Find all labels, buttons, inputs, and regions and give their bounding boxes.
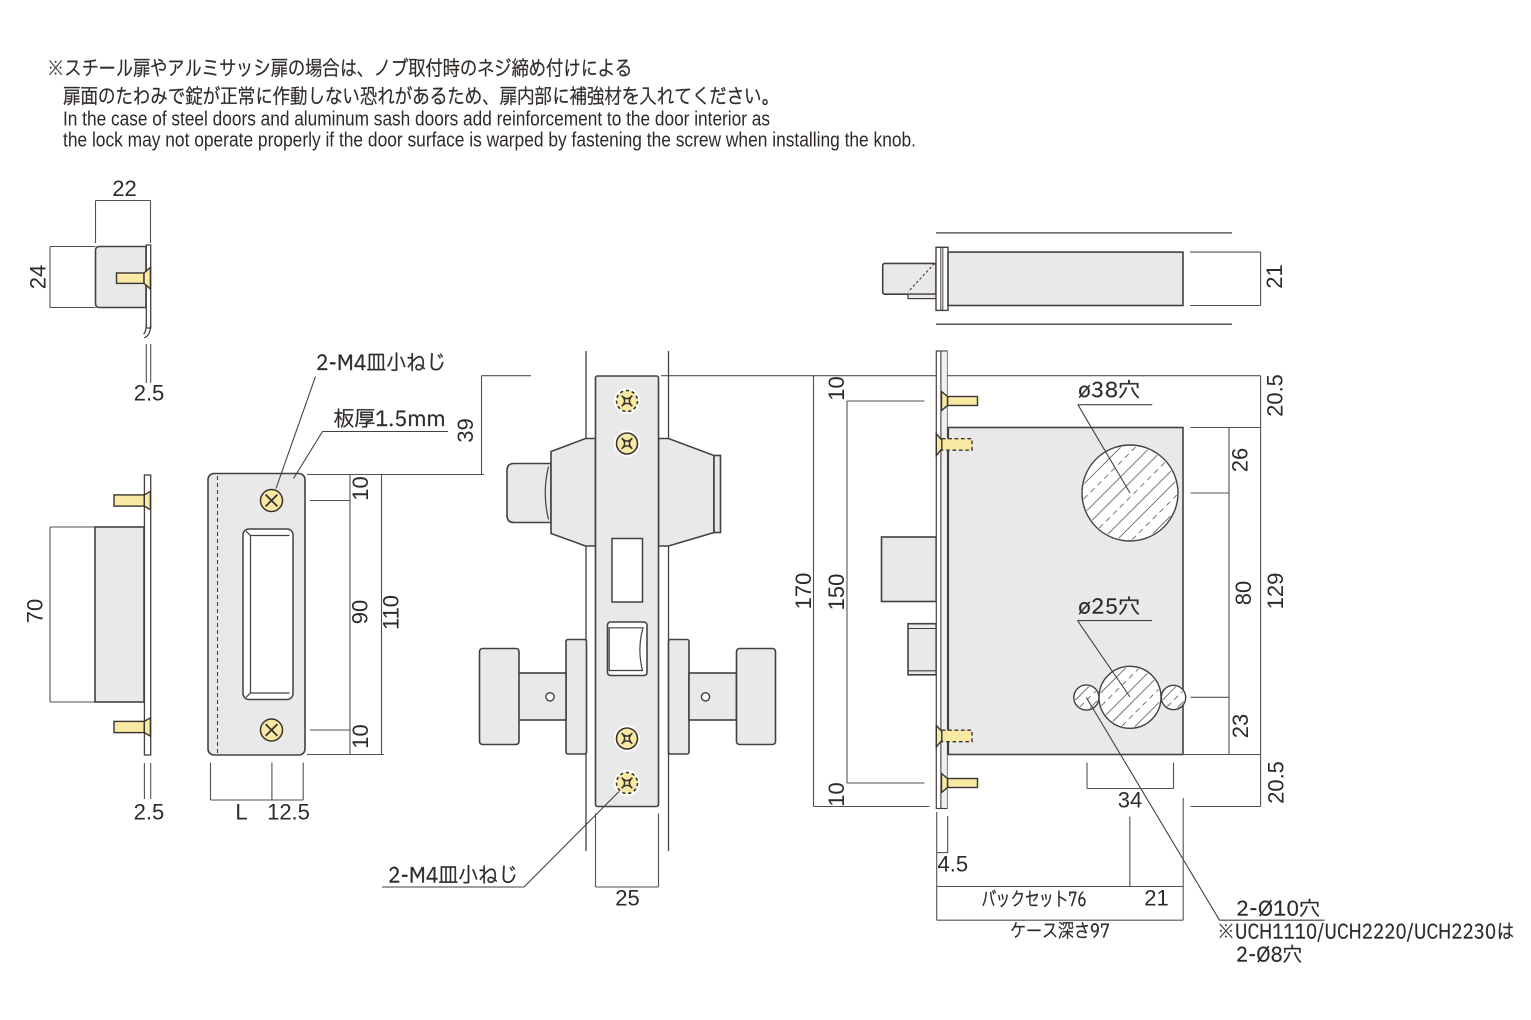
svg-text:129: 129 — [1263, 573, 1288, 610]
svg-text:110: 110 — [379, 595, 404, 630]
svg-text:21: 21 — [1144, 886, 1168, 911]
svg-text:21: 21 — [1262, 264, 1287, 288]
svg-text:34: 34 — [1118, 788, 1142, 813]
svg-text:26: 26 — [1228, 448, 1253, 472]
svg-text:90: 90 — [348, 600, 373, 624]
svg-text:12.5: 12.5 — [267, 800, 310, 825]
svg-text:4.5: 4.5 — [938, 852, 969, 877]
svg-text:22: 22 — [112, 176, 136, 201]
svg-text:20.5: 20.5 — [1264, 761, 1289, 804]
svg-text:2.5: 2.5 — [134, 381, 165, 406]
svg-text:70: 70 — [23, 599, 48, 623]
svg-text:150: 150 — [824, 574, 849, 611]
svg-text:L: L — [235, 800, 247, 825]
svg-text:10: 10 — [824, 376, 849, 400]
svg-text:23: 23 — [1228, 714, 1253, 738]
svg-text:80: 80 — [1231, 581, 1256, 605]
svg-text:25: 25 — [615, 886, 639, 911]
svg-text:20.5: 20.5 — [1263, 374, 1288, 417]
svg-text:the lock may not operate prope: the lock may not operate properly if the… — [63, 130, 916, 152]
svg-text:10: 10 — [348, 724, 373, 748]
svg-text:In the case of steel doors and: In the case of steel doors and aluminum … — [63, 109, 770, 131]
svg-text:10: 10 — [824, 782, 849, 806]
svg-text:24: 24 — [26, 265, 51, 289]
svg-text:10: 10 — [348, 476, 373, 500]
svg-text:39: 39 — [453, 418, 478, 442]
svg-text:170: 170 — [791, 573, 816, 610]
svg-text:2.5: 2.5 — [134, 800, 165, 825]
